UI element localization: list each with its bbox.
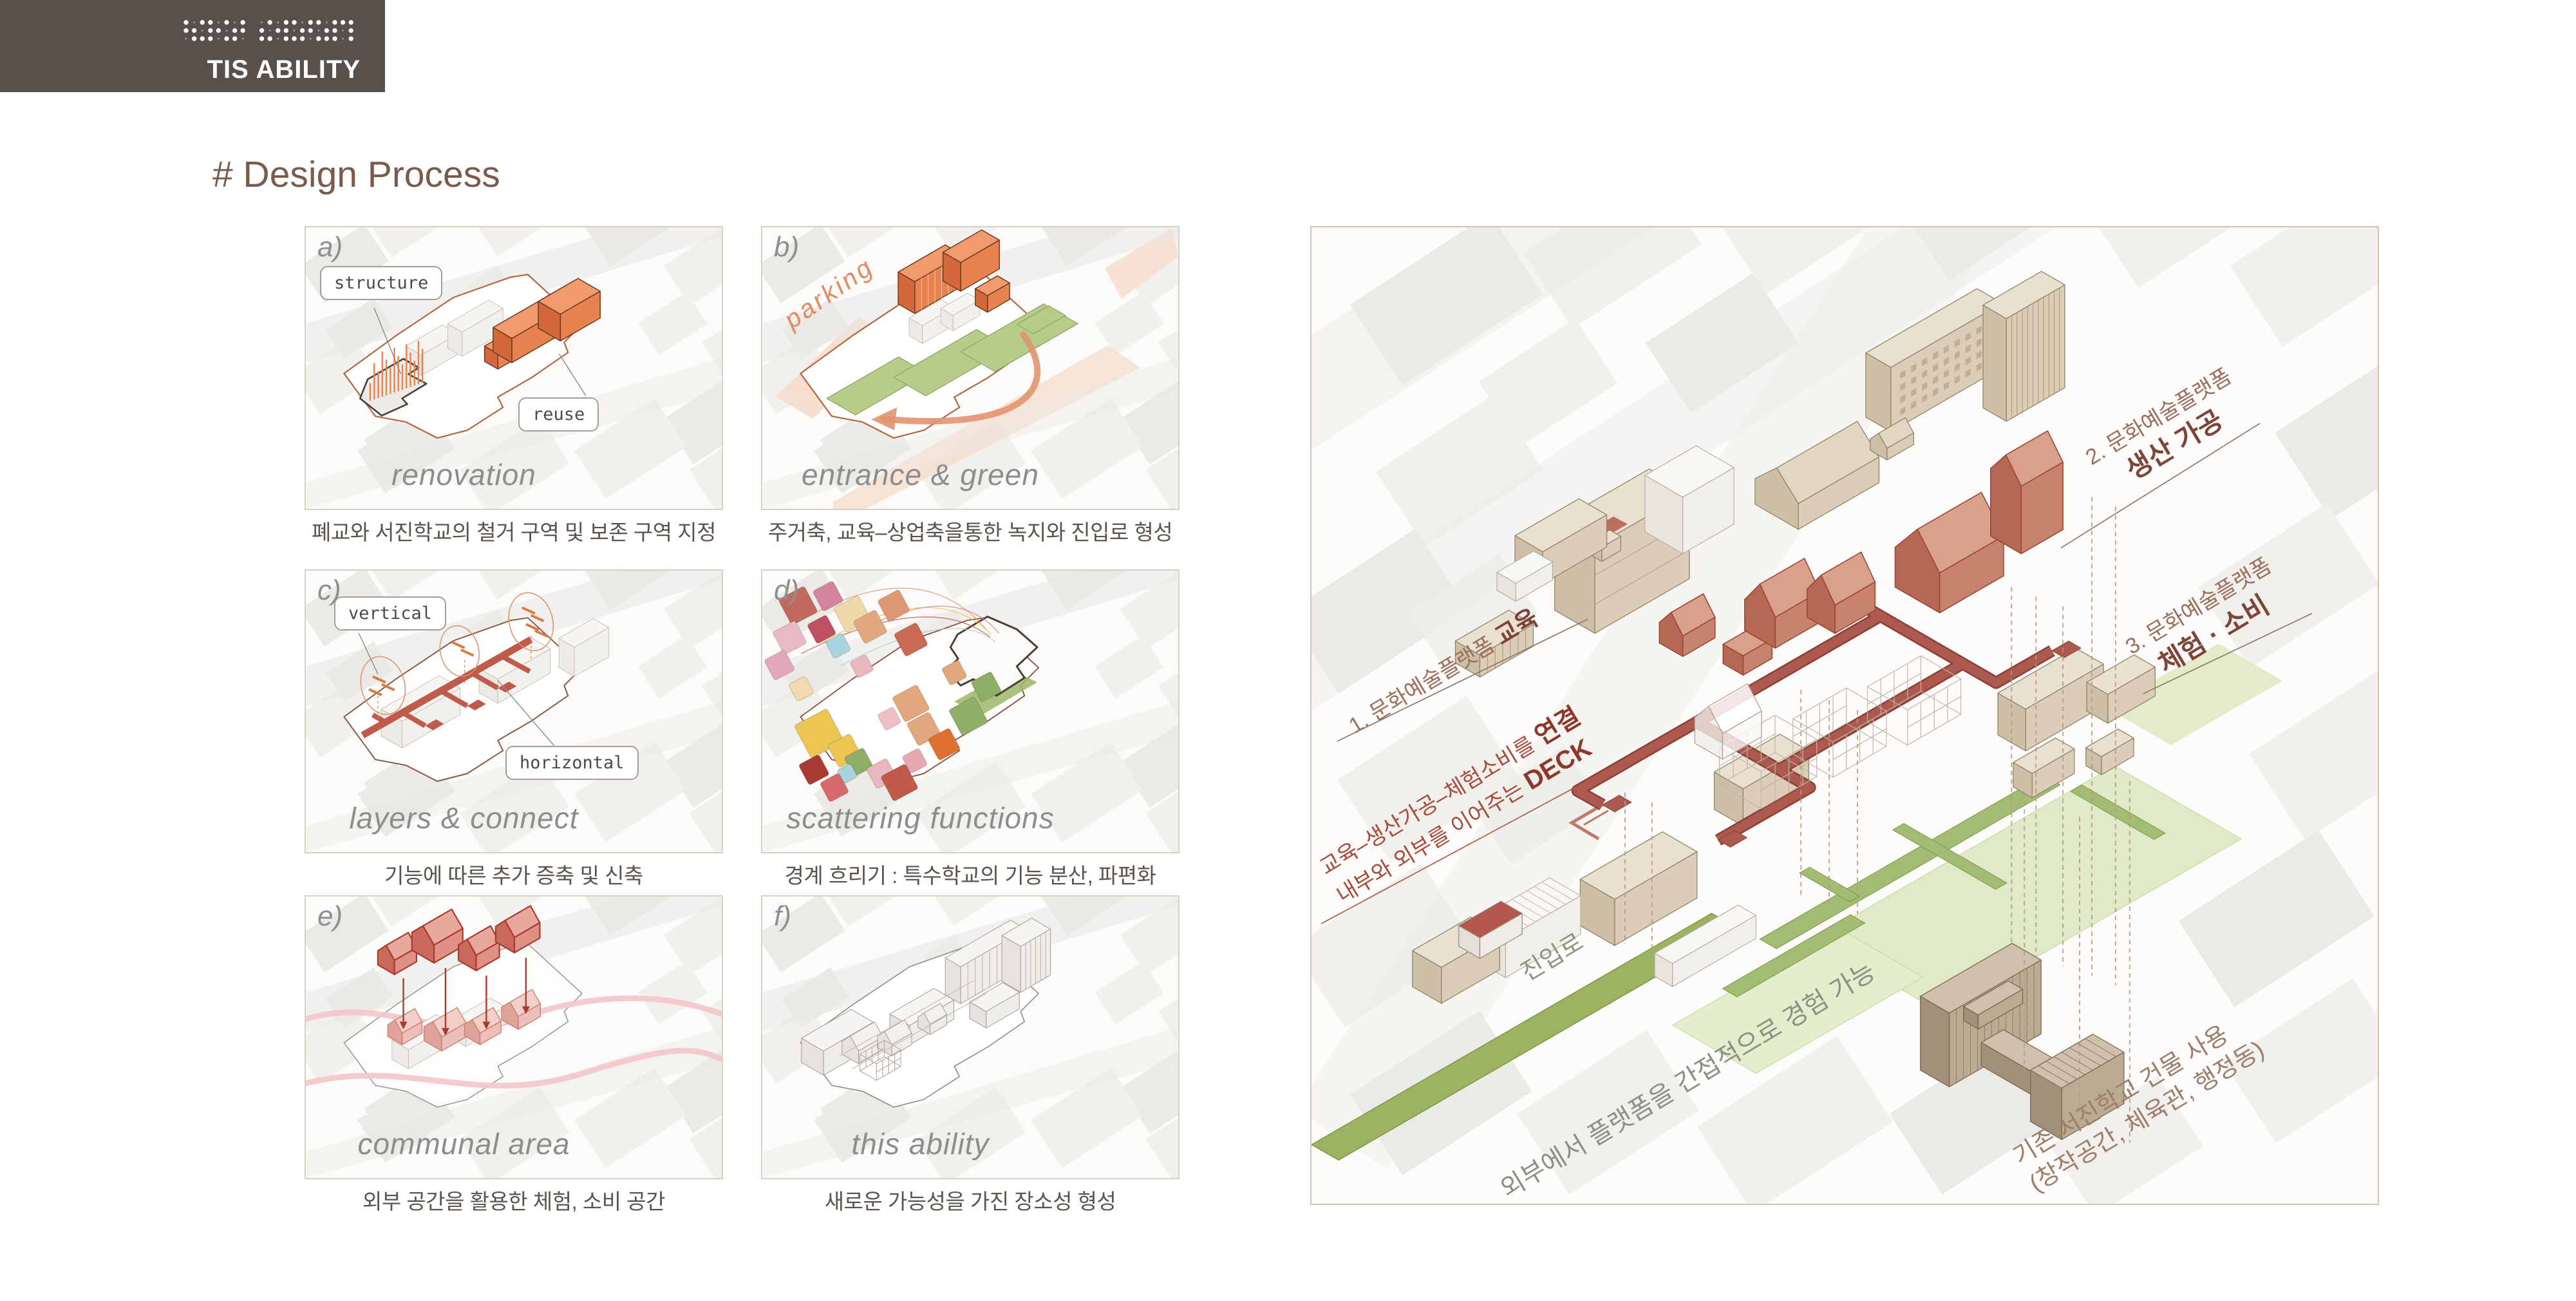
panel-d-title: scattering functions xyxy=(762,801,1078,835)
tag-horizontal: horizontal xyxy=(505,746,639,780)
panel-f-letter: f) xyxy=(774,900,791,933)
tag-structure: structure xyxy=(320,266,442,300)
braille-dots-icon xyxy=(182,15,362,53)
panel-scattering-functions: d) scattering functions xyxy=(761,569,1180,853)
panel-d-caption: 경계 흐리기 : 특수학교의 기능 분산, 파편화 xyxy=(761,859,1180,889)
panel-a-caption: 폐교와 서진학교의 철거 구역 및 보존 구역 지정 xyxy=(305,515,723,546)
panel-a-title: renovation xyxy=(306,457,622,492)
panel-e-caption: 외부 공간을 활용한 체험, 소비 공간 xyxy=(305,1184,723,1215)
tag-structure-label: structure xyxy=(334,273,428,293)
panel-renovation: a) structure reuse renovation xyxy=(305,226,723,510)
panel-e-title: communal area xyxy=(306,1126,622,1161)
panel-communal-area: e) communal area xyxy=(305,895,723,1179)
tag-reuse-label: reuse xyxy=(532,404,585,424)
master-axonometric-panel: 1. 문화예술플랫폼 교육 2. 문화예술플랫폼 생산 가공 3. 문화예술플랫… xyxy=(1310,226,2379,1205)
tag-reuse: reuse xyxy=(518,397,599,432)
panel-f-caption: 새로운 가능성을 가진 장소성 형성 xyxy=(761,1184,1180,1215)
page-title: # Design Process xyxy=(212,153,500,196)
brand-header: TIS ABILITY xyxy=(0,0,385,92)
panel-d-letter: d) xyxy=(774,575,799,607)
panel-entrance-green: b) parking entrance & green xyxy=(761,226,1180,510)
panel-this-ability: f) this ability xyxy=(761,895,1180,1179)
panel-e-letter: e) xyxy=(317,900,343,933)
panel-layers-connect: c) vertical horizontal layers & connect xyxy=(305,569,723,853)
tag-horizontal-label: horizontal xyxy=(520,753,625,773)
panel-c-caption: 기능에 따른 추가 증축 및 신축 xyxy=(305,859,723,889)
panel-b-letter: b) xyxy=(774,231,799,263)
tag-vertical-label: vertical xyxy=(348,603,432,623)
brand-name: TIS ABILITY xyxy=(207,55,361,84)
panel-f-title: this ability xyxy=(762,1126,1078,1161)
panel-b-title: entrance & green xyxy=(762,457,1078,492)
panel-c-title: layers & connect xyxy=(306,801,622,835)
tag-vertical: vertical xyxy=(334,596,446,631)
panel-a-letter: a) xyxy=(317,231,343,263)
panel-b-caption: 주거축, 교육–상업축을통한 녹지와 진입로 형성 xyxy=(761,515,1180,546)
